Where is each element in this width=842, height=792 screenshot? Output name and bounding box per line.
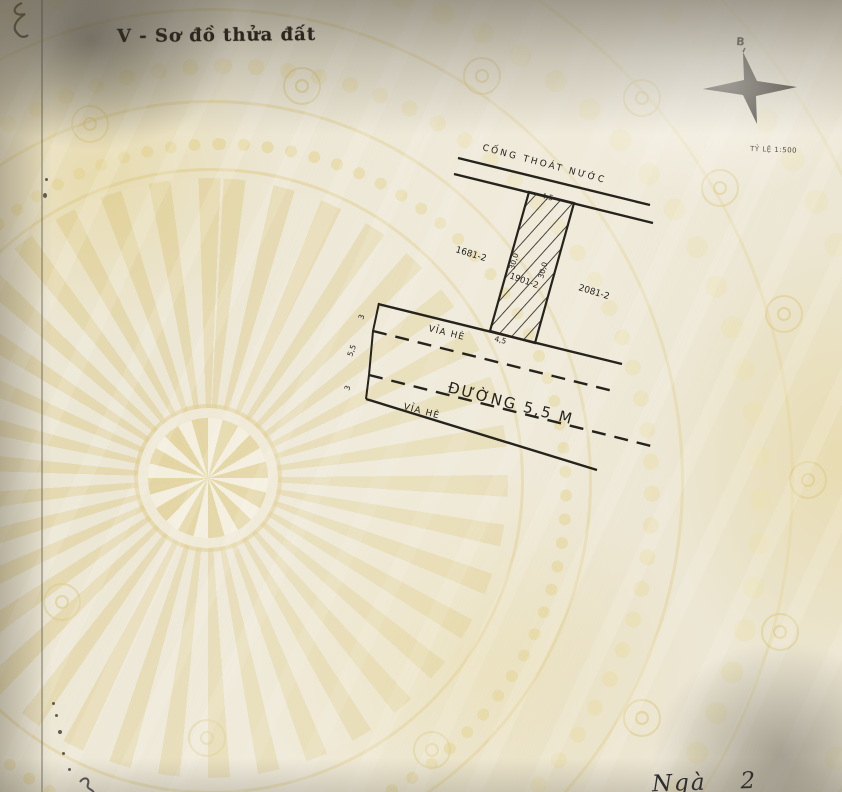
compass: B	[703, 35, 797, 124]
sidewalk-top-width: 3	[356, 313, 366, 321]
ink-speck	[68, 768, 71, 771]
ink-scribble-topleft	[15, 3, 28, 37]
ink-speck	[45, 178, 48, 181]
ink-scribble-bottomleft	[80, 778, 94, 792]
parcel-diagram: CỐNG THOÁT NƯỚC 4,5 30,0 30,0 1901-2 4,5…	[0, 0, 842, 792]
scanned-certificate-page: V - Sơ đồ thửa đất CỐNG THOÁT NƯỚC 4,5 3…	[0, 0, 842, 792]
compass-north-label: B	[736, 35, 745, 49]
ink-speck	[62, 752, 65, 755]
sidewalk-bottom-width: 3	[342, 384, 352, 392]
neighbor-parcel-left-label: 1681-2	[454, 245, 487, 264]
compass-north-star-icon	[703, 52, 797, 124]
ink-speck	[43, 193, 47, 198]
road-left-edge	[366, 303, 379, 399]
parcel-hatched-area	[490, 192, 574, 343]
sidewalk-bottom-label: VỈA HÈ	[402, 400, 441, 421]
road-name-label: ĐƯỜNG 5,5 M	[446, 377, 576, 428]
ink-speck	[55, 714, 58, 717]
handwritten-number: 2	[740, 768, 758, 792]
handwritten-note-fragment: Ngà2	[652, 767, 792, 792]
ink-speck	[58, 730, 62, 734]
paper-crease-line	[41, 0, 43, 792]
ink-speck	[52, 702, 55, 705]
road-width: 5,5	[345, 343, 358, 358]
map-scale-label: TỶ LỆ 1:500	[749, 144, 797, 155]
neighbor-parcel-right-label: 2081-2	[577, 283, 610, 302]
handwritten-word: Ngà	[652, 770, 707, 792]
